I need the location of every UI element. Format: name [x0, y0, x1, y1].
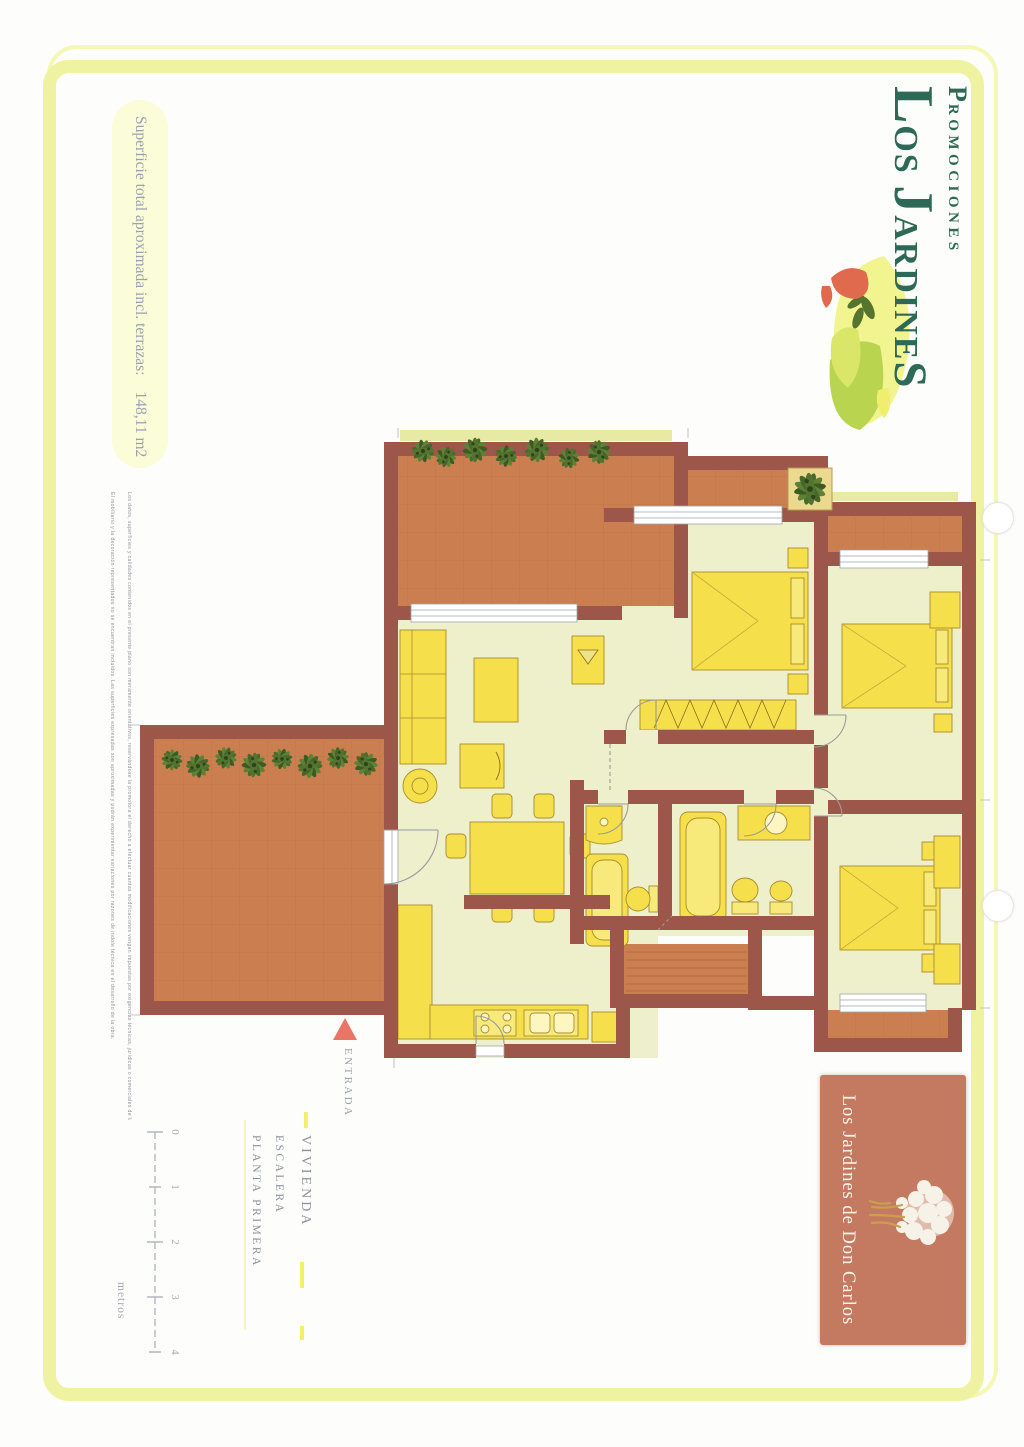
toilet [732, 878, 758, 914]
kitchen-counter [398, 905, 432, 1039]
washbasin [765, 812, 787, 834]
kitchen-sink [524, 1010, 578, 1036]
entrance-door-leaf [476, 1046, 504, 1056]
document-rotated-content: PROMOCIONES LOS JARDINES Superficie tota… [0, 0, 1024, 1447]
nightstand [788, 548, 808, 568]
wardrobe [934, 836, 960, 888]
scale-bar [147, 1132, 163, 1352]
legend-item-planta-primera: PLANTA PRIMERA [250, 1135, 262, 1268]
scale-tick-3: 3 [169, 1286, 181, 1308]
chair [446, 834, 466, 858]
coffee-table [474, 658, 518, 722]
toilet [626, 886, 658, 912]
chair [492, 794, 512, 818]
bed-double [842, 624, 952, 708]
scale-tick-1: 1 [169, 1176, 181, 1198]
nightstand [788, 674, 808, 694]
entrance-label: ENTRADA [342, 1048, 354, 1117]
legend-item-vivienda: VIVIENDA [297, 1135, 313, 1227]
side-table [403, 769, 437, 803]
bidet [770, 881, 792, 914]
nightstand [934, 714, 952, 732]
armchair [460, 744, 504, 788]
dining-table [470, 822, 564, 894]
scale-tick-4: 4 [169, 1341, 181, 1363]
scale-unit-label: metros [115, 1282, 127, 1319]
chair [534, 794, 554, 818]
scanned-brochure-page: PROMOCIONES LOS JARDINES Superficie tota… [0, 0, 1024, 1447]
legend-item-escalera: ESCALERA [273, 1135, 285, 1214]
sofa [400, 630, 446, 764]
scale-tick-2: 2 [169, 1231, 181, 1253]
wardrobe [934, 944, 960, 984]
entrance-arrow-icon [333, 1018, 357, 1040]
closet [930, 592, 960, 628]
floor-plan [0, 0, 1024, 1447]
scale-tick-0: 0 [169, 1121, 181, 1143]
